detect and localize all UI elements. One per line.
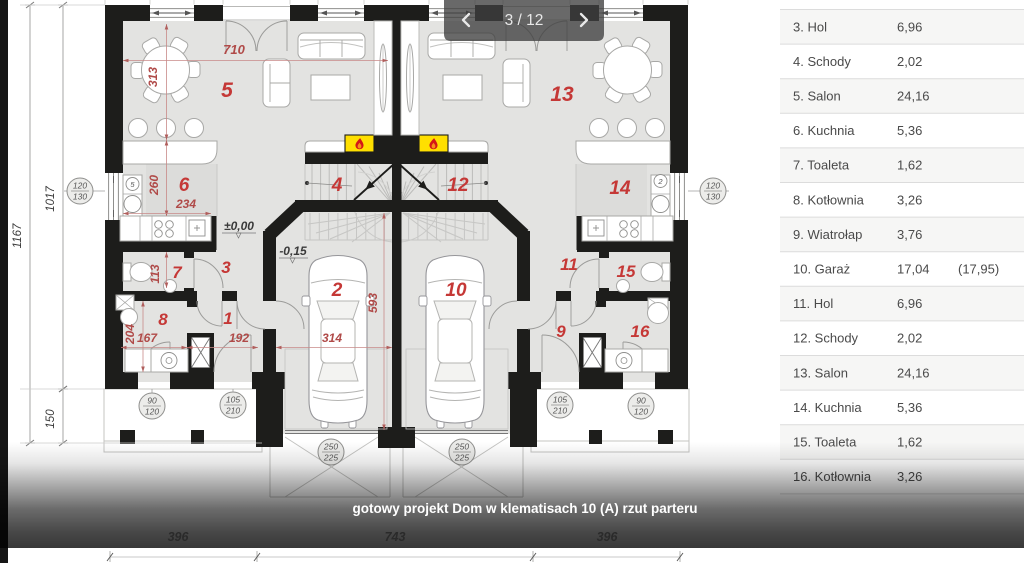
svg-text:9: 9 [556,322,566,341]
svg-text:5,36: 5,36 [897,123,922,138]
svg-text:234: 234 [175,197,196,211]
svg-text:24,16: 24,16 [897,365,930,380]
svg-text:150: 150 [45,409,57,429]
svg-text:130: 130 [706,192,720,202]
svg-text:113: 113 [148,264,162,283]
svg-text:90: 90 [147,396,157,406]
svg-text:313: 313 [146,67,160,87]
svg-text:120: 120 [634,407,648,417]
svg-text:8. Kotłownia: 8. Kotłownia [793,192,865,207]
svg-text:6,96: 6,96 [897,296,922,311]
svg-text:13. Salon: 13. Salon [793,365,848,380]
svg-text:9. Wiatrołap: 9. Wiatrołap [793,227,862,242]
svg-text:14: 14 [609,178,631,199]
svg-text:7. Toaleta: 7. Toaleta [793,158,850,173]
svg-text:210: 210 [552,406,567,416]
svg-text:11. Hol: 11. Hol [793,296,833,311]
svg-text:(17,95): (17,95) [958,262,999,277]
svg-text:4: 4 [331,175,343,196]
svg-text:-0,15: -0,15 [279,244,307,258]
svg-text:260: 260 [147,175,161,196]
svg-text:10. Garaż: 10. Garaż [793,262,850,277]
svg-text:1,62: 1,62 [897,158,922,173]
svg-text:3,26: 3,26 [897,192,922,207]
svg-text:105: 105 [226,395,240,405]
svg-text:12: 12 [447,175,469,196]
svg-text:6. Kuchnia: 6. Kuchnia [793,123,855,138]
svg-text:105: 105 [553,395,567,405]
svg-text:24,16: 24,16 [897,89,930,104]
svg-text:314: 314 [322,331,342,345]
svg-text:120: 120 [73,181,87,191]
svg-text:1: 1 [223,309,232,328]
svg-text:14. Kuchnia: 14. Kuchnia [793,400,862,415]
svg-text:593: 593 [366,293,380,313]
svg-text:17,04: 17,04 [897,262,930,277]
svg-text:210: 210 [225,406,240,416]
svg-text:6,96: 6,96 [897,19,922,34]
svg-text:2,02: 2,02 [897,331,922,346]
svg-text:13: 13 [550,83,574,106]
svg-text:743: 743 [385,530,406,544]
svg-text:2: 2 [657,177,663,186]
svg-text:5. Salon: 5. Salon [793,89,841,104]
svg-text:396: 396 [597,530,619,544]
svg-text:3: 3 [221,258,231,277]
svg-text:3. Hol: 3. Hol [793,19,827,34]
svg-text:11: 11 [560,255,578,274]
svg-text:1167: 1167 [12,223,24,248]
svg-text:16: 16 [631,322,650,341]
svg-text:8: 8 [158,310,168,329]
svg-text:7: 7 [172,263,183,282]
svg-text:710: 710 [223,42,245,57]
svg-text:167: 167 [137,331,158,345]
svg-text:396: 396 [168,530,190,544]
svg-text:gotowy projekt Dom w klematisa: gotowy projekt Dom w klematisach 10 (A) … [352,501,697,516]
svg-text:1017: 1017 [45,186,57,212]
svg-text:5,36: 5,36 [897,400,922,415]
svg-text:4. Schody: 4. Schody [793,54,851,69]
svg-text:±0,00: ±0,00 [224,219,254,233]
svg-text:6: 6 [179,175,190,196]
svg-text:12. Schody: 12. Schody [793,331,859,346]
svg-text:130: 130 [73,192,87,202]
svg-text:10: 10 [445,280,467,301]
svg-text:15: 15 [617,262,636,281]
svg-text:120: 120 [145,407,159,417]
svg-text:120: 120 [706,181,720,191]
svg-text:204: 204 [123,324,137,345]
svg-text:3,76: 3,76 [897,227,922,242]
svg-text:90: 90 [636,396,646,406]
svg-text:2: 2 [331,280,343,301]
svg-text:2,02: 2,02 [897,54,922,69]
svg-text:3 / 12: 3 / 12 [505,12,544,29]
svg-text:5: 5 [221,79,233,102]
svg-text:192: 192 [229,331,249,345]
